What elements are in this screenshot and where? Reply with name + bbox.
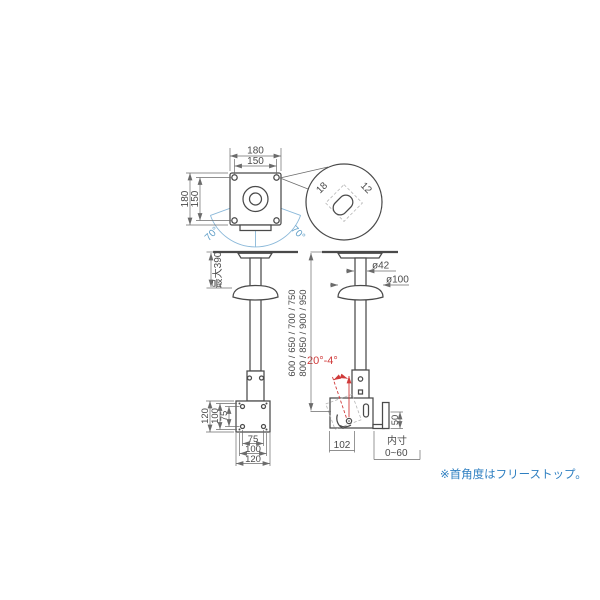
spec-sheet: 180 150 180 150 70° 70° 18 12 <box>0 0 600 600</box>
ceiling-bracket-side <box>338 253 382 258</box>
detail-circle <box>306 164 382 240</box>
dim-bracket-depth: 102 <box>334 440 351 451</box>
dim-cover-diameter: ø100 <box>386 275 409 286</box>
pipe-lengths-line2: 800 / 850 / 900 / 950 <box>298 289 309 376</box>
ceiling-plate-plan <box>230 173 281 225</box>
dim-plate-width-inner: 150 <box>247 156 264 167</box>
pivot-center <box>348 420 350 422</box>
pole-front <box>250 258 261 371</box>
display-hook <box>383 403 390 429</box>
dim-pipe-diameter: ø42 <box>372 261 390 272</box>
dim-plate-width-outer: 180 <box>247 146 264 157</box>
dim-slot-length: 18 <box>314 180 330 196</box>
swivel-angle-right: 70° <box>289 224 307 242</box>
side-view: ø42 ø100 50 内寸 0~60 102 <box>307 252 420 460</box>
dim-plate-left-75: 75 <box>219 411 230 422</box>
plate-tab <box>240 225 271 231</box>
front-view: 最大390 120 100 75 75 100 <box>200 251 298 466</box>
dim-slot-width: 12 <box>358 180 374 196</box>
ceiling-cover-side <box>338 286 383 301</box>
tilt-range-label: 20°-4° <box>307 355 338 367</box>
inner-dim-range: 0~60 <box>385 448 408 459</box>
dim-plate-height-inner: 150 <box>190 190 201 207</box>
top-view: 180 150 180 150 70° 70° 18 12 <box>180 146 382 248</box>
pipe-length-dimension: 600 / 650 / 700 / 750 800 / 850 / 900 / … <box>287 252 331 412</box>
ceiling-mount-spec-drawing: 180 150 180 150 70° 70° 18 12 <box>0 0 600 600</box>
inner-dim-label: 内寸 <box>387 434 407 447</box>
plate-hole-small <box>266 429 268 431</box>
dim-max-drop: 最大390 <box>211 251 224 288</box>
dim-plate-bottom-120: 120 <box>245 454 261 465</box>
dim-hook-height: 50 <box>390 415 401 426</box>
sleeve-side <box>352 370 369 400</box>
swivel-angle-left: 70° <box>203 225 221 243</box>
ceiling-bracket-front <box>238 253 272 258</box>
pole-side <box>355 258 366 370</box>
slot-outline <box>326 185 363 222</box>
pipe-lengths-line1: 600 / 650 / 700 / 750 <box>287 289 298 376</box>
free-stop-note: ※首角度はフリーストップ。 <box>440 467 587 481</box>
ceiling-cover-front <box>233 286 278 301</box>
plate-hole-small <box>266 403 268 405</box>
plate-hole-small <box>239 429 241 431</box>
plate-hole-small <box>239 403 241 405</box>
